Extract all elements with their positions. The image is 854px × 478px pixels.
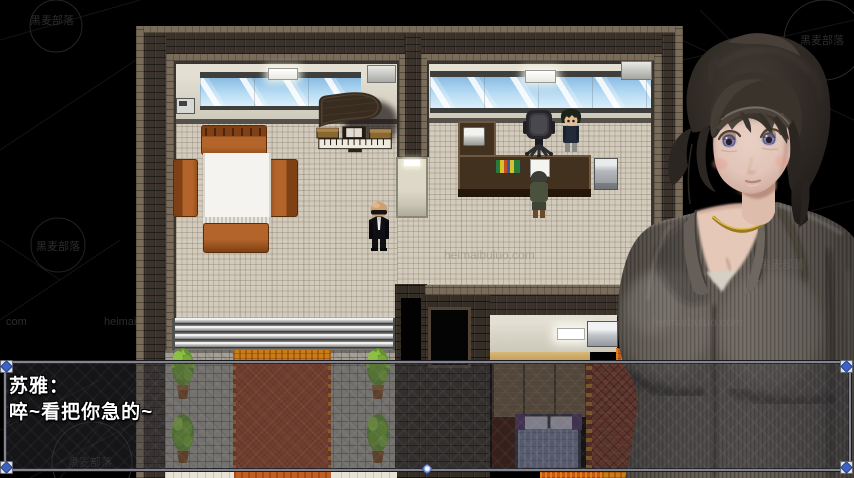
svg-text:heimaibuluo.com: heimaibuluo.com (652, 315, 743, 329)
svg-text:黑麦部落: 黑麦部落 (30, 13, 74, 27)
svg-text:com: com (6, 316, 27, 328)
svg-text:黑麦部落: 黑麦部落 (36, 239, 80, 253)
svg-text:黑麦部落: 黑麦部落 (760, 257, 804, 271)
